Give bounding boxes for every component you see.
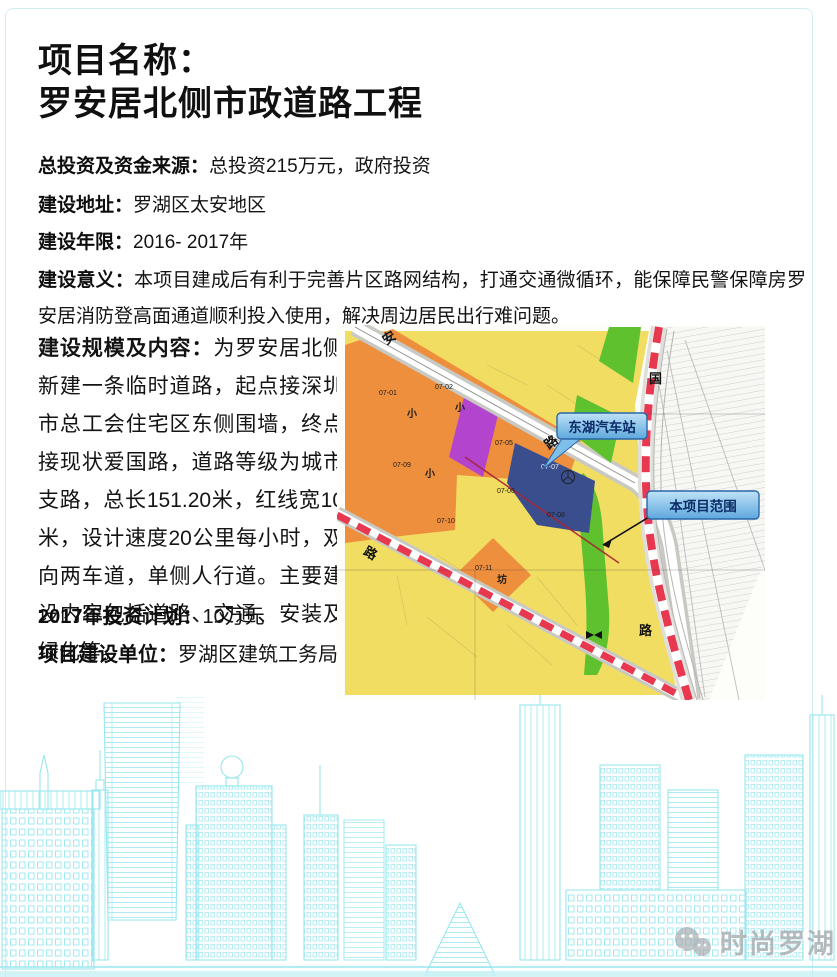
field-value: 罗湖区太安地区: [133, 195, 266, 216]
field-build-unit: 项目建设单位：罗湖区建筑工务局: [38, 638, 338, 667]
svg-text:07-10: 07-10: [437, 518, 455, 525]
svg-text:07-09: 07-09: [393, 462, 411, 469]
field-address: 建设地址：罗湖区太安地区: [38, 194, 266, 218]
svg-text:07-02: 07-02: [435, 384, 453, 391]
title-line-2: 罗安居北侧市政道路工程: [38, 83, 423, 126]
field-label: 2017年投资计划：: [38, 606, 203, 628]
field-plan-2017: 2017年投资计划：10万元: [38, 600, 265, 629]
field-label: 建设规模及内容：: [38, 337, 213, 360]
watermark-text: 时尚罗湖: [720, 922, 836, 961]
wechat-icon: [672, 925, 714, 959]
svg-text:国: 国: [649, 371, 662, 386]
title-line-1: 项目名称：: [38, 40, 423, 83]
planning-map-svg: 07-01 07-02 07-09 07-05 07-06 07-07 07-0…: [337, 325, 765, 700]
field-value: 10万元: [203, 606, 265, 628]
page-title: 项目名称： 罗安居北侧市政道路工程: [38, 40, 423, 126]
field-value: 罗湖区建筑工务局: [178, 644, 338, 666]
svg-text:07-11: 07-11: [475, 565, 492, 572]
field-value: 2016- 2017年: [133, 232, 248, 253]
svg-text:路: 路: [639, 623, 653, 638]
field-label: 总投资及资金来源：: [38, 156, 209, 177]
svg-text:07-05: 07-05: [495, 440, 513, 447]
field-label: 项目建设单位：: [38, 644, 178, 666]
svg-text:东湖汽车站: 东湖汽车站: [568, 419, 636, 435]
field-label: 建设年限：: [38, 232, 133, 253]
svg-text:小: 小: [424, 467, 435, 480]
field-investment: 总投资及资金来源：总投资215万元，政府投资: [38, 155, 431, 179]
field-value: 总投资215万元，政府投资: [209, 156, 431, 177]
svg-text:小: 小: [406, 407, 417, 420]
watermark: 时尚罗湖: [672, 922, 836, 961]
svg-text:07-08: 07-08: [547, 512, 565, 519]
svg-text:小: 小: [454, 401, 465, 414]
poster-page: 项目名称： 罗安居北侧市政道路工程 总投资及资金来源：总投资215万元，政府投资…: [0, 0, 837, 977]
svg-text:07-01: 07-01: [379, 390, 397, 397]
field-years: 建设年限：2016- 2017年: [38, 231, 248, 255]
planning-map: 07-01 07-02 07-09 07-05 07-06 07-07 07-0…: [337, 325, 765, 700]
svg-text:本项目范围: 本项目范围: [669, 498, 737, 514]
field-value: 本项目建成后有利于完善片区路网结构，打通交通微循环，能保障民警保障房罗安居消防登…: [38, 270, 806, 327]
field-label: 建设地址：: [38, 195, 133, 216]
svg-text:坊: 坊: [497, 573, 507, 586]
svg-text:07-06: 07-06: [497, 488, 515, 495]
field-label: 建设意义：: [38, 270, 134, 291]
